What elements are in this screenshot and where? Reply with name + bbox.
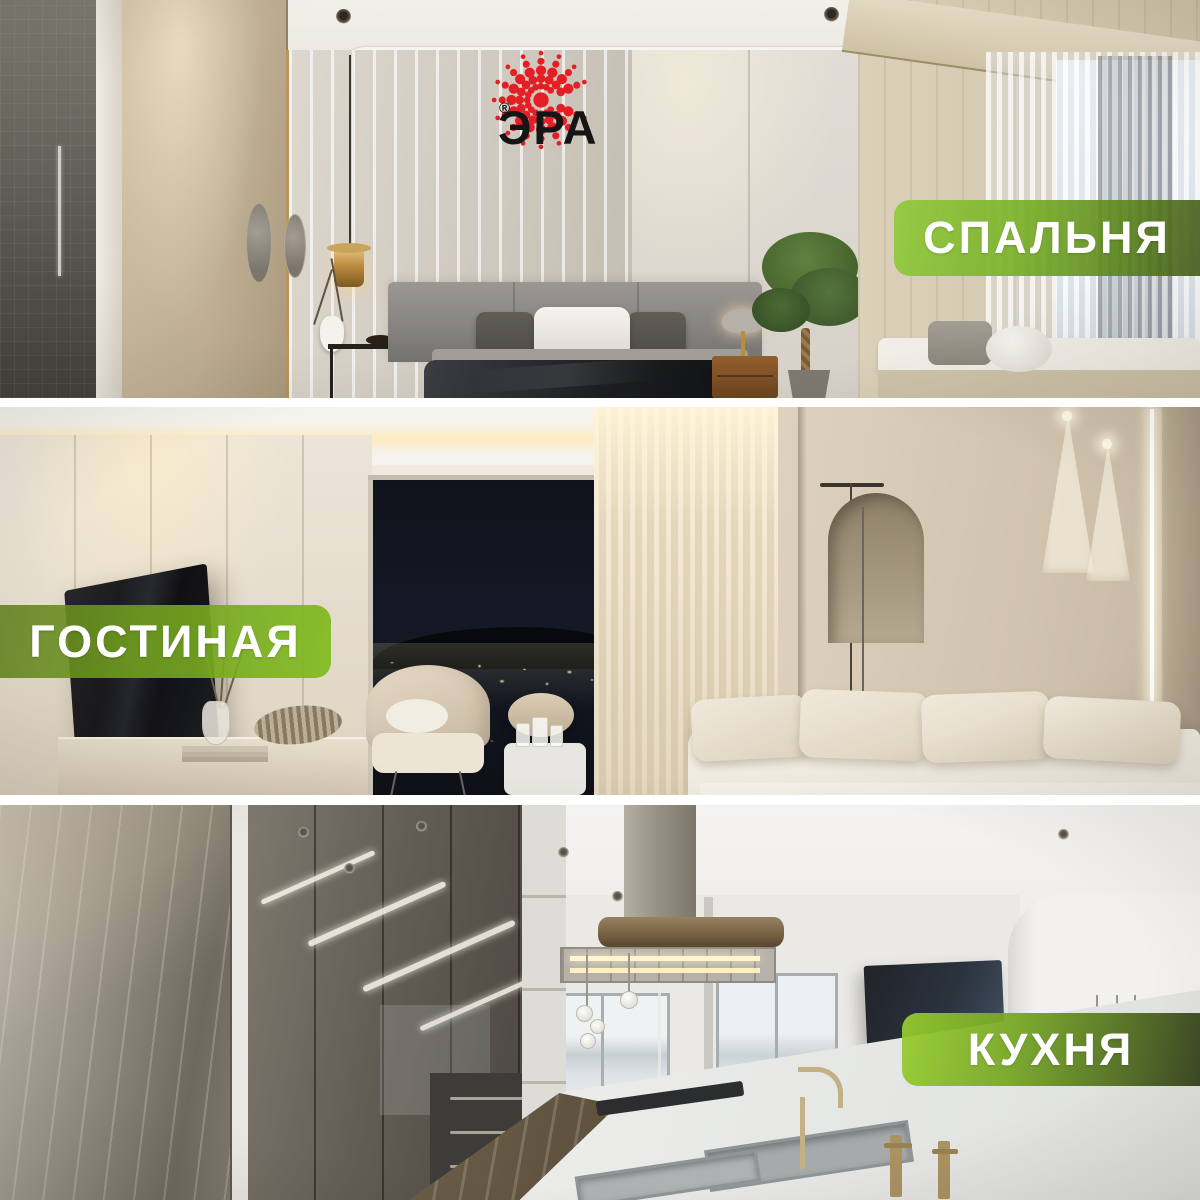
- ceiling-spotlight: [558, 847, 569, 858]
- drawer-handle: [450, 1131, 530, 1134]
- glass-pendant-bulb: [620, 991, 638, 1009]
- hood-light-bar: [570, 956, 760, 961]
- sofa-cushion: [799, 689, 929, 761]
- glass-door-frame: [96, 0, 123, 398]
- ceiling-downlight: [1062, 411, 1072, 421]
- glass-pendant-globe: [1126, 1083, 1151, 1108]
- floor-lamp-stem: [862, 507, 864, 703]
- kitchen-badge: КУХНЯ: [902, 1013, 1200, 1086]
- shower-fixture: [58, 146, 61, 276]
- oval-mirror: [246, 203, 272, 283]
- wood-nightstand: [712, 356, 778, 398]
- era-logo: ЭРА ®: [488, 42, 748, 158]
- section-divider: [0, 795, 1200, 805]
- book-stack: [182, 746, 268, 762]
- seat-pillow-white: [986, 326, 1052, 372]
- ceiling-spotlight: [1058, 829, 1069, 840]
- range-hood-chimney: [624, 805, 696, 919]
- bedroom-photo: ЭРА ® СПАЛЬНЯ: [0, 0, 1200, 398]
- ceiling-spotlight: [824, 7, 839, 22]
- ceiling-downlight: [1102, 439, 1112, 449]
- pendant-cord: [349, 55, 351, 247]
- bedroom-badge: СПАЛЬНЯ: [894, 200, 1200, 276]
- sconce-arm: [820, 483, 884, 487]
- era-rooms-collage: ЭРА ® СПАЛЬНЯ: [0, 0, 1200, 1200]
- hood-light-frame: [560, 947, 776, 983]
- living-room-photo: ГОСТИНАЯ: [0, 407, 1200, 795]
- armchair-seat: [372, 733, 484, 773]
- glassware: [516, 723, 530, 747]
- living-room-badge-label: ГОСТИНАЯ: [29, 616, 301, 668]
- sofa-cushion: [690, 694, 809, 762]
- oval-mirror: [284, 214, 306, 278]
- gold-pendant-lamp: [334, 247, 364, 287]
- shower-tile-wall: [0, 0, 96, 398]
- seat-pillow-gray: [928, 321, 992, 365]
- side-table: [504, 743, 586, 795]
- stainless-steel-panel: [0, 805, 232, 1200]
- drawer-handle: [450, 1097, 530, 1100]
- range-hood-canopy: [598, 917, 784, 947]
- brass-faucet-spout: [884, 1143, 912, 1148]
- sofa-cushion: [921, 691, 1051, 763]
- wardrobe-panel: [122, 0, 288, 398]
- white-pillar: [232, 805, 248, 1200]
- living-room-badge: ГОСТИНАЯ: [0, 605, 331, 678]
- bedroom-badge-label: СПАЛЬНЯ: [923, 212, 1171, 264]
- section-divider: [0, 398, 1200, 407]
- glassware: [550, 725, 563, 747]
- arched-wall-niche: [828, 493, 924, 643]
- armchair-pillow: [386, 699, 448, 733]
- ceiling-spotlight: [298, 827, 309, 838]
- brass-faucet-spout: [932, 1149, 958, 1154]
- kitchen-badge-label: КУХНЯ: [968, 1024, 1134, 1076]
- plant-pot: [785, 370, 833, 398]
- ceiling-spotlight: [416, 821, 427, 832]
- ceiling-spotlight: [612, 891, 623, 902]
- window-seat-base: [878, 370, 1200, 398]
- dark-duvet: [424, 360, 754, 398]
- registered-trademark-symbol: ®: [499, 100, 510, 117]
- tall-cabinet-strip: [522, 805, 566, 1200]
- coffee-table-edge: [700, 783, 1200, 795]
- glass-pendant-bulb: [580, 1033, 596, 1049]
- glass-vase: [202, 701, 230, 745]
- ceiling-spotlight: [344, 863, 355, 874]
- kitchen-photo: КУХНЯ: [0, 805, 1200, 1200]
- ceiling-spotlight: [336, 9, 351, 24]
- sofa-cushion: [1042, 695, 1181, 764]
- plant-braided-trunk: [801, 328, 810, 376]
- pendant-cord: [586, 955, 588, 1011]
- vertical-led-strip: [1150, 409, 1154, 715]
- era-logo-text: ЭРА: [498, 104, 599, 151]
- glassware: [532, 717, 548, 747]
- pendant-cord: [628, 953, 630, 995]
- window-frame: [368, 475, 624, 480]
- plant-foliage: [752, 288, 810, 332]
- drawer-handle: [450, 1165, 530, 1168]
- glass-pendant-bulb: [576, 1005, 593, 1022]
- bedside-lamp-stem: [741, 331, 745, 359]
- glass-pendant-bulb: [590, 1019, 605, 1034]
